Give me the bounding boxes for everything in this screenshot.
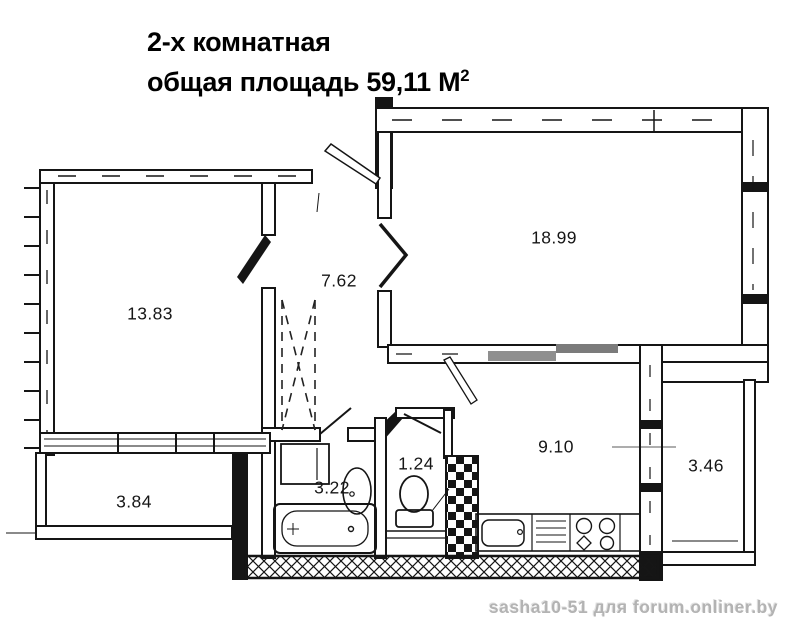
room-label-living-room: 13.83: [127, 304, 173, 325]
floor-plan-page: 2-х комнатная общая площадь 59,11 М2 13.…: [0, 0, 800, 629]
square-meter-sup: 2: [460, 66, 469, 85]
room-label-toilet: 1.24: [398, 454, 434, 475]
plan-title-line2: общая площадь 59,11 М2: [147, 59, 469, 99]
bedroom-door-icon: [380, 224, 406, 287]
room-label-balcony-left: 3.84: [116, 492, 152, 513]
ventilation-shaft-icon: [446, 456, 478, 558]
kitchen-door-icon: [444, 357, 477, 404]
plan-title-line1: 2-х комнатная: [147, 25, 469, 59]
room-label-kitchen: 9.10: [538, 437, 574, 458]
room-label-hallway: 7.62: [321, 271, 357, 292]
living-room-door-icon: [237, 235, 271, 284]
scan-smudge: [488, 351, 556, 361]
entrance-door-icon: [317, 144, 380, 212]
kitchen-sink-icon: [482, 520, 524, 546]
window-wall-living: [40, 433, 270, 453]
stove-icon: [577, 519, 615, 551]
room-label-bathroom: 3.22: [314, 478, 350, 499]
room-label-balcony-right: 3.46: [688, 456, 724, 477]
kitchen-counter-icon: [476, 514, 640, 551]
scan-smudge: [556, 344, 618, 353]
wardrobe-icon: [282, 300, 315, 430]
interior-walls: [232, 132, 768, 580]
hatched-exterior-wall: [246, 556, 658, 578]
bathroom-door-icon: [320, 408, 351, 434]
plan-title: 2-х комнатная общая площадь 59,11 М2: [147, 25, 469, 99]
bathtub-icon: [274, 504, 376, 553]
room-label-bedroom: 18.99: [531, 228, 577, 249]
watermark: sasha10-51 для forum.onliner.by: [489, 597, 778, 618]
toilet-bowl-icon: [396, 476, 449, 527]
